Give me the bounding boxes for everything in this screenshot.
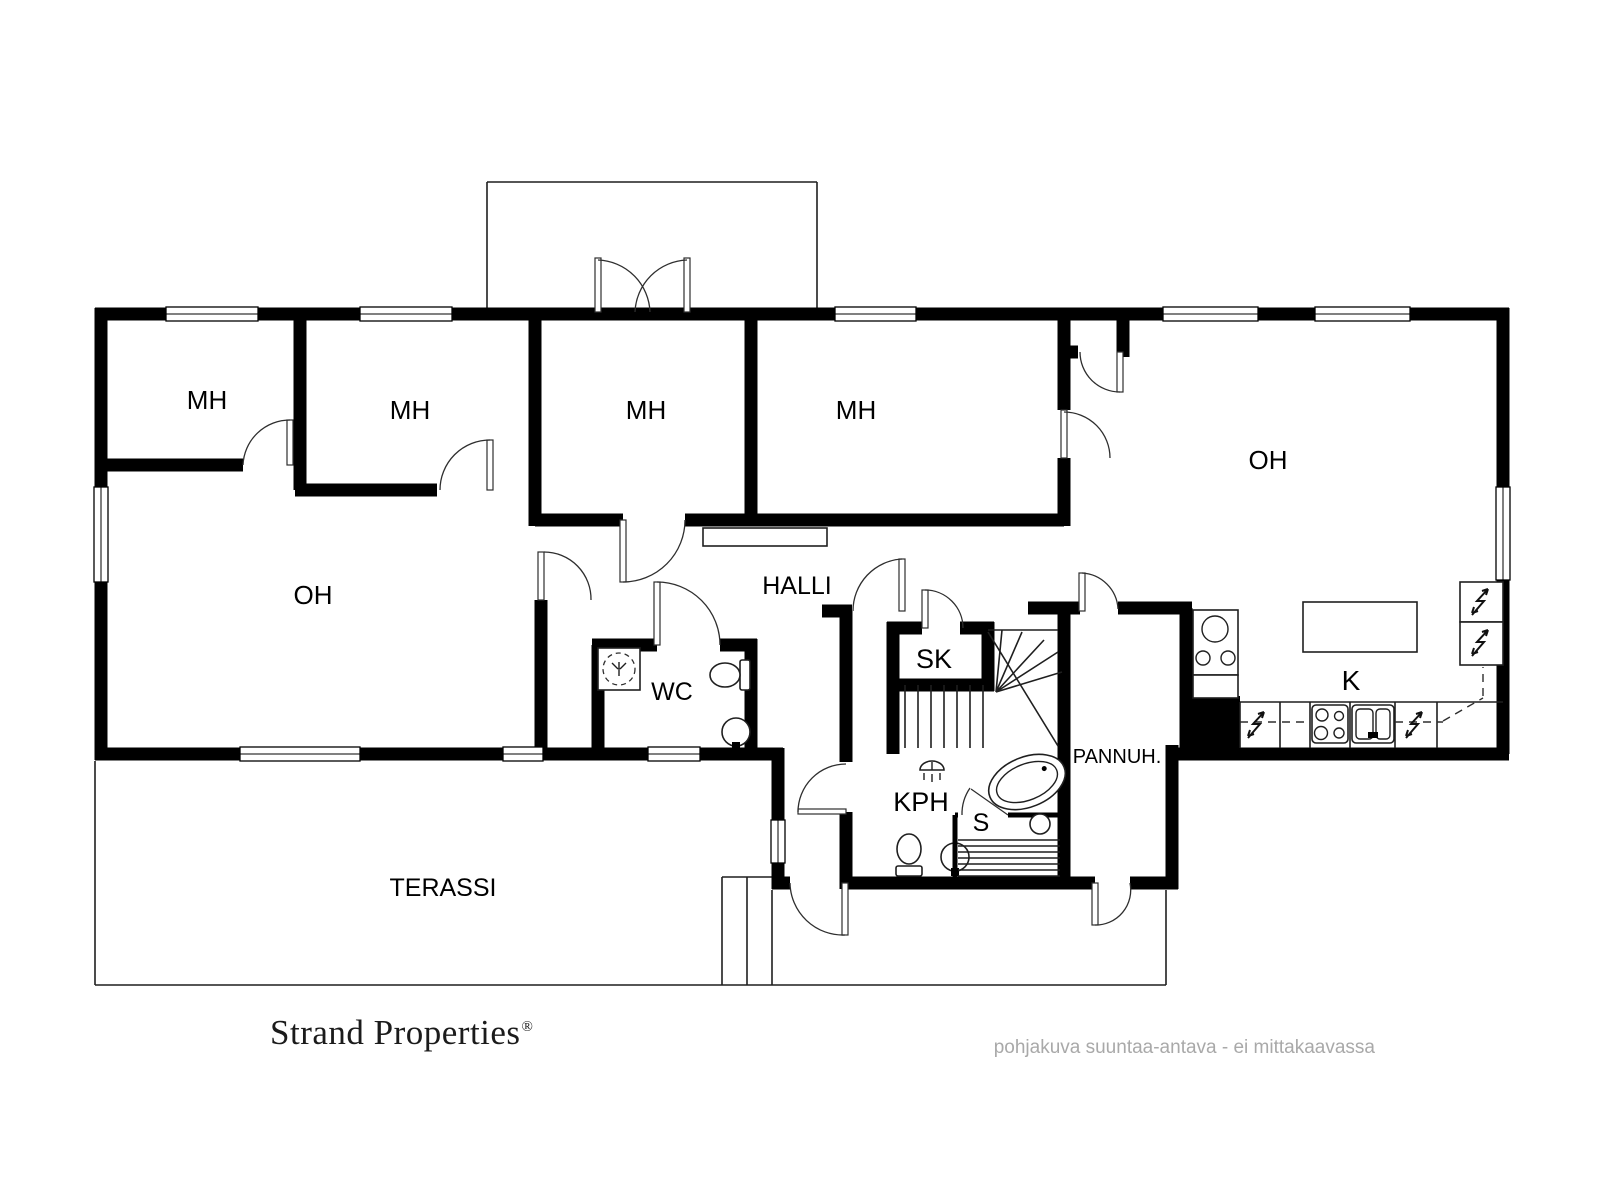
room-label-terassi: TERASSI [390,874,497,902]
door [1061,410,1110,458]
terrace-steps [722,877,772,985]
room-label-sauna: S [973,809,990,837]
toilet-icon [710,660,750,690]
toilet-icon [896,834,922,876]
stove-icon [1193,610,1238,698]
lower-terrace-outline [772,890,1166,985]
brand-logo: Strand Properties® [270,1013,533,1052]
room-label-wc: WC [651,678,693,706]
window [240,747,360,761]
kitchen-island [1303,602,1417,652]
door [790,883,848,935]
door [922,590,963,628]
cooktop-icon [1312,705,1348,743]
door [853,559,905,611]
window [835,307,916,321]
room-label-kitchen: K [1342,665,1361,696]
registered-mark: ® [522,1019,534,1035]
sauna-benches [958,840,1060,876]
door [1079,573,1118,611]
door [1092,883,1131,925]
brand-text: Strand Properties [270,1013,521,1052]
shower-icon [920,761,944,782]
shower-icon [598,648,640,690]
window [360,307,452,321]
double-door [595,258,690,312]
fixtures [598,528,1503,883]
room-label-mh1: MH [187,385,227,415]
window [1163,307,1258,321]
room-label-halli: HALLI [762,572,831,600]
floor-plan-page: MH MH MH MH OH OH HALLI WC SK KPH S PANN… [0,0,1600,1200]
window [771,820,785,863]
room-label-oh-right: OH [1249,445,1288,475]
room-label-sk: SK [916,644,952,674]
footer: Strand Properties® pohjakuva suuntaa-ant… [270,1013,1375,1058]
doors [243,258,1131,935]
room-label-kph: KPH [893,787,949,817]
door [538,552,591,600]
door [1080,352,1123,392]
porch-outline [487,182,817,310]
window [94,487,108,582]
window [1496,487,1510,580]
window [648,747,700,761]
door [440,440,493,490]
fridge-icon [1460,582,1503,665]
room-label-mh3: MH [626,395,666,425]
door [243,420,293,465]
door [620,520,685,582]
room-label-pannuh: PANNUH. [1073,746,1162,768]
window [503,747,543,761]
door [654,582,720,645]
door [798,764,846,814]
kitchen-sink-icon [1352,705,1394,743]
window [1315,307,1410,321]
terrace-outline [95,761,772,985]
closet-shelf [703,528,827,546]
floor-plan-svg: MH MH MH MH OH OH HALLI WC SK KPH S PANN… [0,0,1600,1200]
room-label-oh-left: OH [294,580,333,610]
window [166,307,258,321]
room-label-mh4: MH [836,395,876,425]
sauna-stove-icon [1030,814,1050,834]
room-label-mh2: MH [390,395,430,425]
chimney-block [1180,696,1240,754]
disclaimer-text: pohjakuva suuntaa-antava - ei mittakaava… [994,1037,1376,1058]
